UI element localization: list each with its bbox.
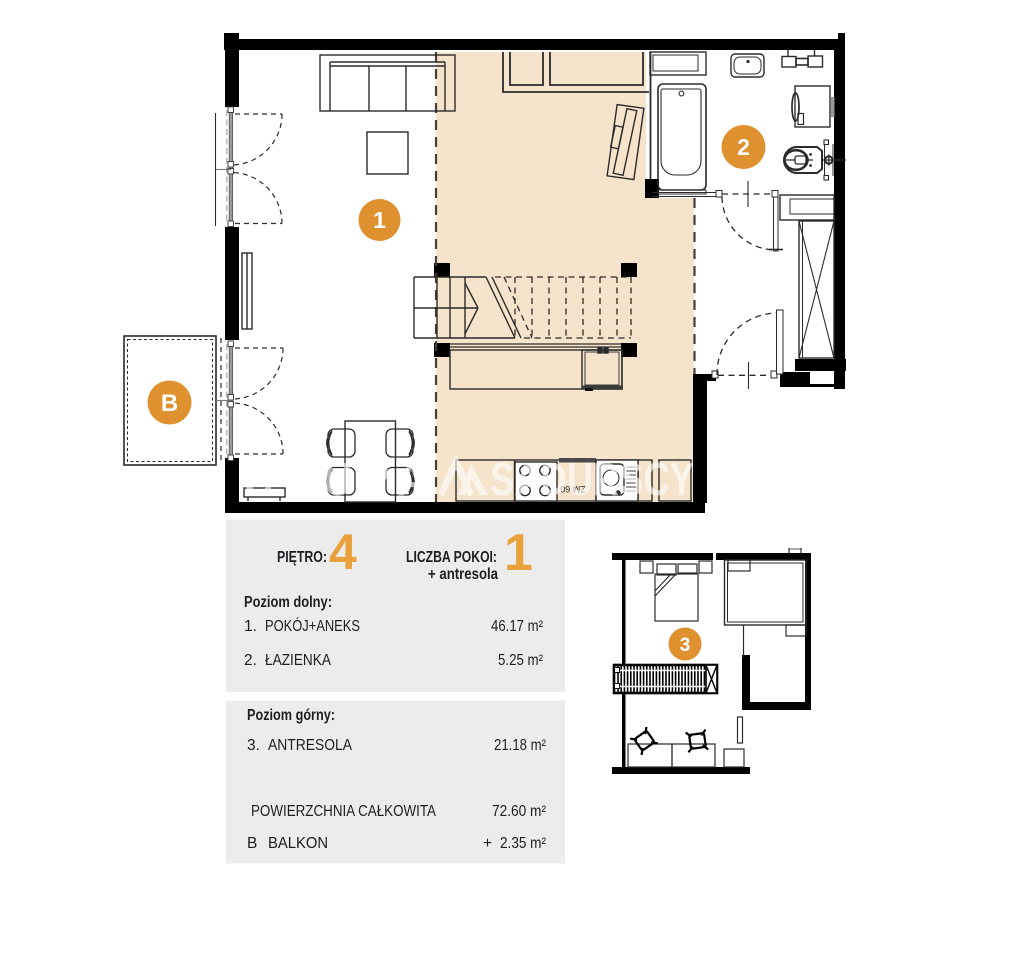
svg-text:B: B <box>247 835 257 852</box>
svg-text:2.35 m²: 2.35 m² <box>500 835 546 852</box>
svg-text:1: 1 <box>373 207 386 233</box>
svg-text:4: 4 <box>329 524 357 580</box>
svg-text:3: 3 <box>680 635 691 656</box>
svg-text:1: 1 <box>504 524 533 582</box>
svg-text:2: 2 <box>737 134 750 160</box>
svg-text:Poziom górny:: Poziom górny: <box>247 707 335 724</box>
svg-text:POKÓJ+ANEKS: POKÓJ+ANEKS <box>265 618 360 635</box>
svg-text:+: + <box>483 835 492 852</box>
svg-text:+ antresola: + antresola <box>428 566 498 583</box>
svg-text:B: B <box>161 390 178 417</box>
svg-text:46.17 m²: 46.17 m² <box>491 618 543 635</box>
svg-text:GRUPA: GRUPA <box>243 454 437 506</box>
svg-text:POWIERZCHNIA CAŁKOWITA: POWIERZCHNIA CAŁKOWITA <box>251 803 437 820</box>
svg-text:5.25 m²: 5.25 m² <box>498 652 543 669</box>
svg-text:21.18 m²: 21.18 m² <box>494 737 546 754</box>
svg-text:ANTRESOLA: ANTRESOLA <box>268 737 353 754</box>
svg-text:72.60 m²: 72.60 m² <box>492 803 546 820</box>
svg-text:SADURSCY: SADURSCY <box>490 453 694 505</box>
svg-text:1.: 1. <box>244 618 257 635</box>
svg-text:LICZBA POKOI:: LICZBA POKOI: <box>406 549 497 566</box>
svg-text:BALKON: BALKON <box>268 835 328 852</box>
svg-text:Poziom dolny:: Poziom dolny: <box>244 594 332 611</box>
svg-text:ŁAZIENKA: ŁAZIENKA <box>265 652 332 669</box>
svg-text:3.: 3. <box>247 737 260 754</box>
svg-text:PIĘTRO:: PIĘTRO: <box>277 549 327 566</box>
svg-text:2.: 2. <box>244 652 257 669</box>
